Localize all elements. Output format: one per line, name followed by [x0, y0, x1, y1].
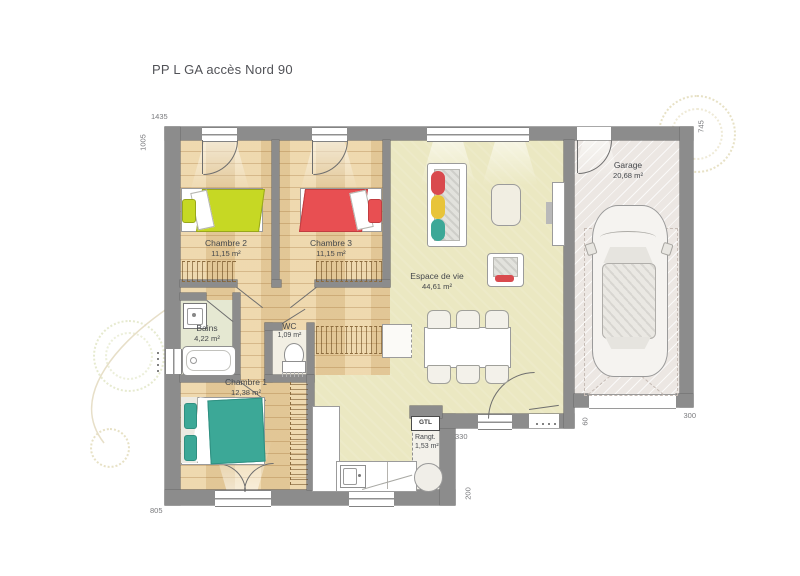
chambre3-label: Chambre 3 11,15 m²: [293, 238, 369, 258]
tv-screen: [546, 202, 552, 224]
sofa-cushion-teal: [431, 219, 445, 241]
dim-bottom-left-width: 805: [150, 506, 180, 515]
dining-table: [424, 327, 511, 368]
dim-entry-width: 330: [455, 432, 481, 441]
partition-chambre2-3: [272, 140, 279, 287]
hall-wall-b: [272, 280, 281, 287]
bed-chambre2: [181, 188, 263, 232]
room-area: 44,61 m²: [382, 282, 492, 291]
bed-chambre3: [300, 188, 382, 232]
room-name: Chambre 2: [188, 238, 264, 249]
dim-entry-offset: 60: [581, 411, 590, 433]
chambre1-closet: [290, 382, 308, 485]
living-garage-wall: [564, 140, 574, 428]
bed-pillow: [184, 435, 197, 461]
left-wall: [165, 127, 180, 505]
dim-kitchen-depth: 200: [464, 481, 473, 507]
garage-label: Garage 20,68 m²: [597, 160, 659, 180]
room-area: 12,38 m²: [205, 388, 287, 397]
espace-de-vie-label: Espace de vie 44,61 m²: [382, 271, 492, 291]
garage-right-wall: [680, 127, 693, 407]
rangt-label: Rangt. 1,53 m²: [415, 434, 443, 452]
armchair-back: [493, 257, 518, 277]
partition-chambre3-living: [383, 140, 390, 287]
dim-top-width: 1435: [151, 112, 181, 121]
room-area: 4,22 m²: [180, 334, 234, 343]
dim-garage-door-width: 300: [670, 411, 696, 420]
dim-garage-right-height: 745: [697, 112, 706, 142]
sofa-cushion-yellow: [431, 195, 445, 219]
room-name: Rangt.: [415, 434, 443, 443]
room-name: Bains: [180, 323, 234, 334]
kitchen-window: [349, 490, 394, 507]
bains-top-wall: [180, 293, 206, 300]
plan-title: PP L GA accès Nord 90: [152, 62, 293, 77]
car-hood-line: [600, 231, 656, 244]
kitchen-sink: [340, 465, 366, 488]
coffee-table: [491, 184, 521, 226]
chambre3-wardrobe: [316, 261, 382, 282]
bed-cushion: [368, 199, 382, 223]
counter-divider: [387, 462, 388, 489]
room-area: 11,15 m²: [293, 249, 369, 258]
car: [590, 205, 670, 380]
chambre2-label: Chambre 2 11,15 m²: [188, 238, 264, 258]
living-bay-window: [427, 127, 529, 142]
sofa: [427, 163, 467, 247]
dining-chair: [485, 310, 509, 329]
bed-mattress: [207, 398, 265, 465]
bed-pillow: [184, 403, 197, 429]
room-area: 20,68 m²: [597, 171, 659, 180]
washbasin-drain: [192, 313, 196, 317]
dim-left-height: 1005: [139, 128, 148, 158]
chambre1-label: Chambre 1 12,38 m²: [205, 377, 287, 397]
dining-chair: [427, 365, 451, 384]
room-name: Chambre 3: [293, 238, 369, 249]
hall-closet: [316, 326, 382, 354]
bains-window: [165, 349, 182, 374]
hall-cabinet: [382, 324, 412, 358]
armchair: [487, 253, 524, 287]
bathtub: [182, 346, 236, 376]
chambre2-wardrobe: [182, 261, 236, 282]
water-heater: [414, 463, 443, 492]
room-area: 11,15 m²: [188, 249, 264, 258]
dining-chair: [456, 310, 480, 329]
sofa-cushion-red: [431, 171, 445, 195]
faucet: [358, 474, 361, 477]
bains-label: Bains 4,22 m²: [180, 323, 234, 343]
room-name: Chambre 1: [205, 377, 287, 388]
floor-plan: PP L GA accès Nord 90: [0, 0, 800, 576]
room-area: 1,53 m²: [415, 443, 443, 452]
dining-chair: [427, 310, 451, 329]
bathtub-drain: [190, 357, 197, 364]
garage-bottom-stub-right: [676, 394, 693, 407]
toilet: [282, 343, 304, 377]
car-roof: [602, 263, 656, 339]
room-area: 1,09 m²: [271, 332, 308, 341]
chambre1-window: [215, 490, 271, 507]
bottom-wall-left: [165, 490, 455, 505]
bed-chambre1: [181, 397, 265, 465]
room-name: Espace de vie: [382, 271, 492, 282]
tv-unit: [552, 182, 565, 246]
wc-label: WC 1,09 m²: [271, 321, 308, 340]
dining-chair: [485, 365, 509, 384]
gtl-box: GTL: [411, 416, 440, 431]
wc-right-wall: [307, 323, 314, 382]
dining-chair: [456, 365, 480, 384]
garage-door-opening: [589, 394, 676, 409]
sink-bowl: [343, 468, 357, 485]
room-name: WC: [271, 321, 308, 332]
bed-cushion: [182, 199, 196, 223]
room-name: Garage: [597, 160, 659, 171]
garage-service-door-opening: [577, 127, 611, 140]
armchair-cushion: [495, 275, 514, 282]
